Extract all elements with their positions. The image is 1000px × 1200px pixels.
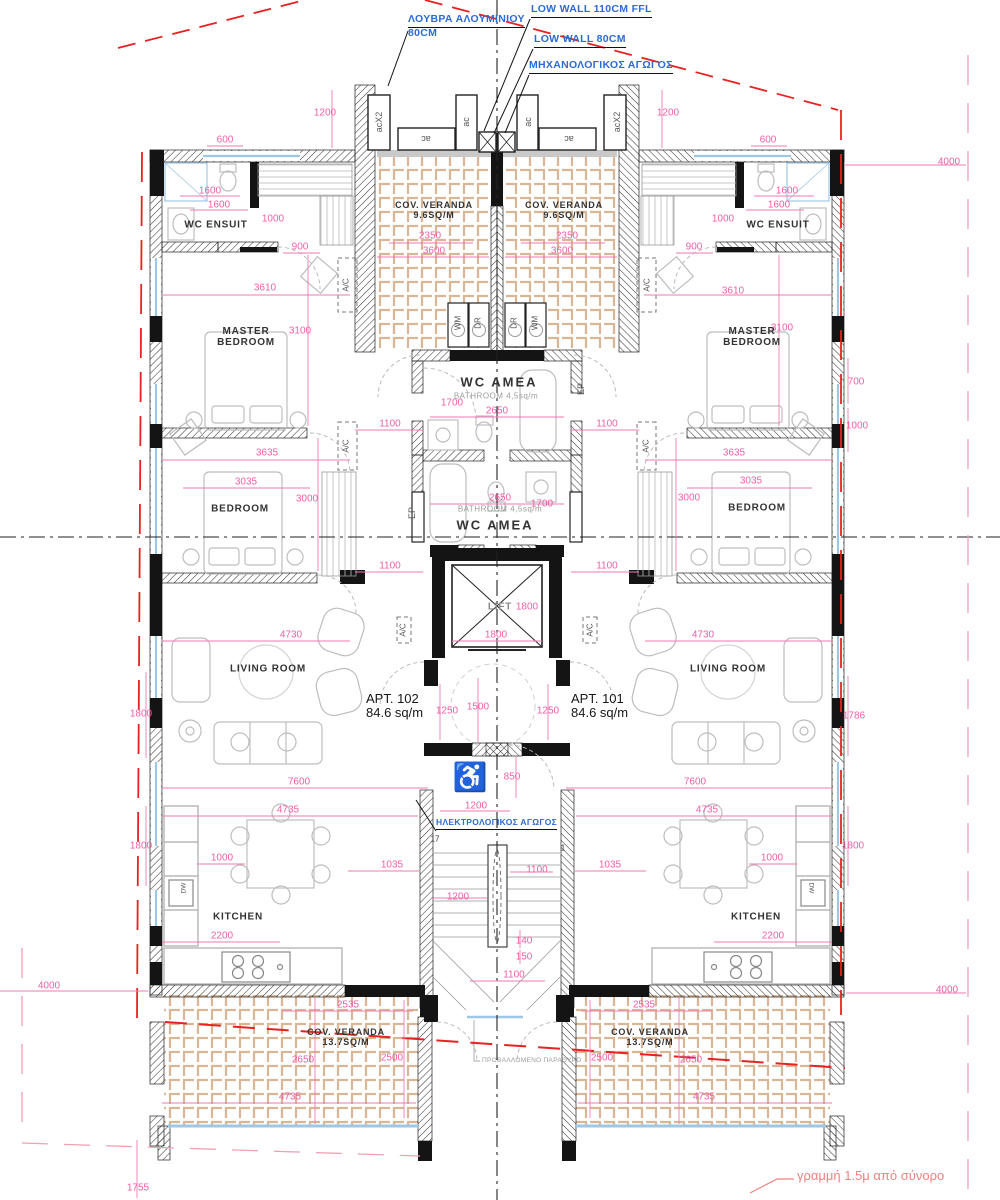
bathroom-fixtures-lower <box>430 464 556 542</box>
laundry-units <box>448 303 489 347</box>
bathroom-fixtures-upper <box>428 370 556 452</box>
core <box>424 368 560 1061</box>
boundary-note: γραμμή 1.5μ από σύνορο <box>797 1168 944 1183</box>
floor-plan-canvas: 6006001200120040004000400016001600160016… <box>0 0 1000 1200</box>
lift <box>452 565 542 650</box>
wardrobes <box>258 164 356 576</box>
projected-window-note: ΠΡΟΒΑΛΛΟΜΕΝΟ ΠΑΡΑΘΥΡΟ <box>482 1057 582 1064</box>
floor-plan-drawing <box>0 0 1000 1200</box>
ac-units <box>368 95 496 152</box>
